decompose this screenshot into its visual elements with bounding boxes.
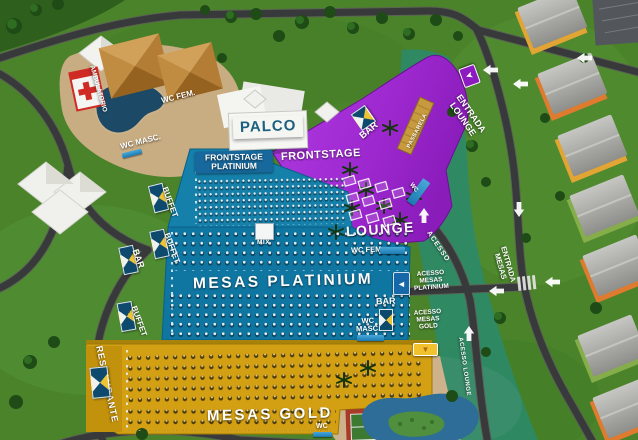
acesso-mesas-platinium-label: ACESSO MESAS PLATINIUM <box>410 270 451 293</box>
mesas-platinium-label: MESAS PLATINIUM <box>193 272 374 293</box>
mix-label: MIX <box>257 240 270 247</box>
bar-platinium-flag <box>379 309 393 331</box>
bar-platinium-label: BAR <box>376 297 396 307</box>
mesas-gold-label: MESAS GOLD <box>207 405 333 424</box>
wc-gold-label: WC <box>316 423 328 430</box>
acesso-lounge-label: ACESSO LOUNGE <box>457 337 472 396</box>
entrada-lounge-label: ENTRADA LOUNGE <box>443 89 490 144</box>
acesso-mesas-gold-sign: ▼ <box>413 343 438 356</box>
gold-tables-upper <box>126 346 423 407</box>
wc-masc-platinium-bar <box>357 335 384 341</box>
acesso-mesas-gold-label: ACESSO MESAS GOLD <box>408 309 447 332</box>
acesso-label: ACESSO <box>425 230 451 264</box>
acesso-mesas-platinium-sign: ◄ <box>393 272 410 295</box>
wc-fem-platinium-label: WC FEM. <box>351 245 384 254</box>
wc-gold-bar <box>313 432 332 437</box>
frontstage-platinium-label: FRONTSTAGE PLATINIUM <box>195 150 273 173</box>
venue-map: PALCO FRONTSTAGE PLATINIUM FRONTSTAGE LO… <box>0 0 638 440</box>
ambulatorio-label: AMBULATORIO <box>87 65 107 113</box>
frontstage-label: FRONTSTAGE <box>281 148 361 164</box>
mix-booth <box>255 223 274 240</box>
wc-lounge-bar <box>407 178 431 206</box>
label-overlay: PALCO FRONTSTAGE PLATINIUM FRONTSTAGE LO… <box>0 0 638 440</box>
passarela-label: PASSARELA <box>407 113 429 150</box>
entrada-mesas-label: ENTRADA MESAS <box>491 243 518 288</box>
wc-fem-platinium-bar <box>380 247 405 254</box>
palco-label: PALCO <box>233 115 304 139</box>
frontstage-seats <box>197 176 346 227</box>
wc-fem-top-label: WC FEM. <box>160 89 196 106</box>
restaurante-flag <box>89 366 110 399</box>
entrada-lounge-flag-sign: ➤ <box>458 64 481 89</box>
